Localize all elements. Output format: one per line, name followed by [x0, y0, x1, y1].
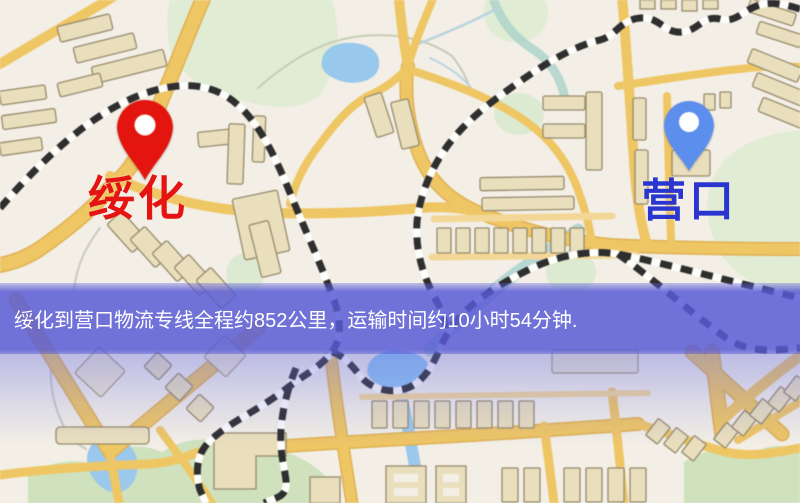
origin-city-label: 绥化 [88, 177, 188, 224]
route-info-text: 绥化到营口物流专线全程约852公里，运输时间约10小时54分钟. [0, 304, 577, 333]
destination-city-label: 营口 [641, 178, 737, 223]
route-info-banner: 绥化到营口物流专线全程约852公里，运输时间约10小时54分钟. [0, 283, 800, 354]
logistics-map-screenshot: 绥化 营口 绥化到营口物流专线全程约852公里，运输时间约10小时54分钟. [0, 0, 800, 503]
map-canvas [0, 0, 800, 503]
